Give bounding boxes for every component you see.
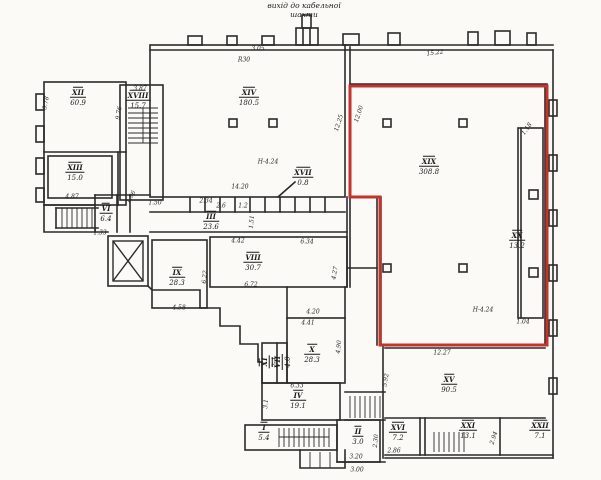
- stair-flight-left: [62, 208, 92, 228]
- stair-flight-center: [350, 396, 380, 418]
- stair-flight-bottom-right: [434, 432, 464, 452]
- stair-flight-top-tower: [128, 108, 158, 143]
- elevator-shaft: [113, 241, 143, 281]
- floor-plan-page: вихід до кабельної шахти XII60.9XVIII15.…: [0, 0, 601, 480]
- stairs: [62, 108, 464, 468]
- entrance-steps: [310, 452, 330, 468]
- columns: [229, 119, 467, 272]
- stair-flight-bottom-corridor: [279, 428, 329, 447]
- floor-plan-drawing: [0, 0, 601, 480]
